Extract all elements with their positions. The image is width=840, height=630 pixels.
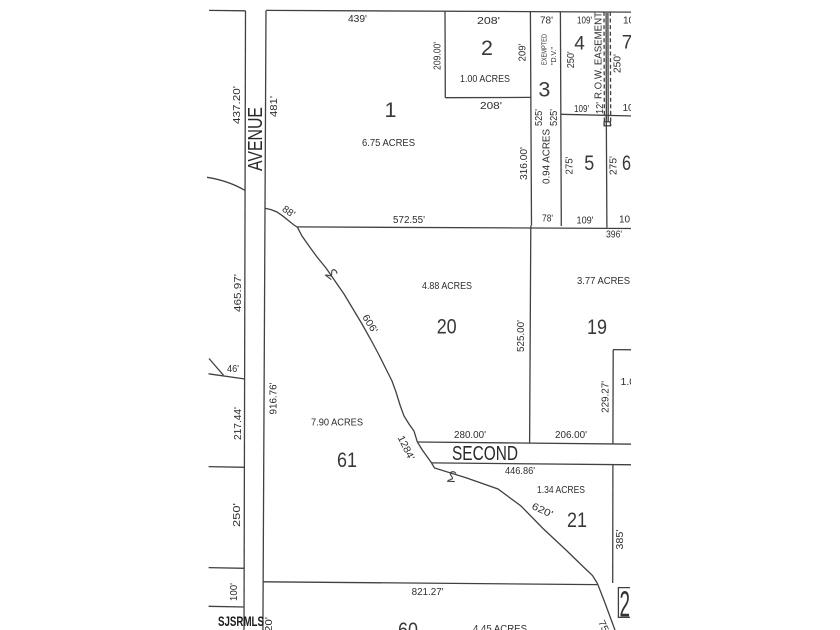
svg-text:275': 275' (609, 156, 620, 175)
svg-text:1.34 ACRES: 1.34 ACRES (537, 484, 585, 496)
svg-text:SJSRMLS: SJSRMLS (218, 613, 264, 629)
svg-text:385': 385' (615, 530, 626, 550)
svg-text:208': 208' (480, 101, 502, 112)
svg-text:AVENUE: AVENUE (245, 107, 267, 171)
svg-text:21: 21 (567, 508, 587, 532)
svg-text:6: 6 (622, 151, 631, 175)
svg-text:109': 109' (577, 216, 594, 227)
svg-text:1: 1 (385, 98, 397, 122)
svg-text:5: 5 (584, 151, 594, 175)
svg-text:208': 208' (477, 16, 500, 27)
svg-text:206.00': 206.00' (555, 430, 587, 441)
svg-text:109': 109' (577, 16, 592, 27)
svg-text:572.55': 572.55' (393, 215, 425, 226)
svg-text:0.94 ACRES: 0.94 ACRES (541, 129, 553, 184)
svg-text:396': 396' (606, 230, 622, 241)
svg-text:2: 2 (620, 584, 631, 625)
svg-text:SECOND: SECOND (452, 443, 518, 465)
svg-text:61: 61 (337, 448, 357, 472)
svg-text:437.20': 437.20' (232, 86, 243, 124)
svg-text:280.00': 280.00' (454, 430, 486, 441)
svg-text:6.75 ACRES: 6.75 ACRES (362, 137, 415, 149)
svg-text:"D.V.": "D.V." (549, 47, 558, 65)
svg-text:109': 109' (574, 104, 589, 115)
svg-text:229.27': 229.27' (601, 381, 612, 413)
svg-text:821.27': 821.27' (412, 587, 444, 598)
svg-text:209': 209' (518, 43, 529, 61)
svg-text:465.97': 465.97' (233, 274, 244, 312)
svg-text:2: 2 (481, 36, 493, 60)
svg-text:3.77 ACRES: 3.77 ACRES (577, 275, 630, 287)
svg-text:316.00': 316.00' (519, 147, 530, 180)
svg-text:75': 75' (595, 619, 611, 630)
svg-text:4.45 ACRES: 4.45 ACRES (473, 623, 527, 630)
svg-text:1284': 1284' (395, 434, 416, 462)
svg-text:100': 100' (229, 583, 240, 601)
svg-text:7.90 ACRES: 7.90 ACRES (311, 417, 363, 429)
svg-text:10: 10 (619, 215, 631, 226)
svg-text:R.O.W. EASEMENT: R.O.W. EASEMENT (594, 12, 605, 99)
svg-text:525.00': 525.00' (516, 320, 527, 352)
svg-text:275': 275' (565, 156, 576, 174)
svg-text:46': 46' (227, 364, 239, 375)
svg-text:7: 7 (622, 33, 633, 54)
svg-text:78': 78' (540, 16, 553, 27)
svg-text:250': 250' (613, 54, 624, 73)
svg-text:217.44': 217.44' (233, 407, 244, 440)
svg-text:EXEMPTED: EXEMPTED (540, 34, 549, 65)
svg-text:481': 481' (269, 96, 280, 117)
svg-text:20': 20' (264, 617, 275, 630)
svg-text:12': 12' (595, 102, 606, 114)
svg-text:60: 60 (398, 618, 418, 630)
svg-text:20: 20 (437, 315, 457, 339)
svg-text:78': 78' (542, 214, 553, 225)
svg-text:439': 439' (348, 14, 367, 25)
svg-text:1.00 ACRES: 1.00 ACRES (460, 73, 510, 85)
svg-text:4.88 ACRES: 4.88 ACRES (422, 280, 472, 292)
svg-text:3: 3 (538, 78, 550, 102)
svg-text:525': 525' (549, 109, 560, 126)
svg-text:250': 250' (232, 503, 243, 527)
svg-text:446.86': 446.86' (505, 466, 535, 477)
svg-text:88': 88' (280, 204, 297, 221)
svg-text:916.76': 916.76' (269, 382, 280, 414)
svg-text:620': 620' (530, 501, 555, 520)
svg-text:525': 525' (534, 109, 545, 126)
svg-text:250': 250' (566, 51, 577, 68)
svg-text:209.00': 209.00' (433, 42, 444, 70)
svg-text:19: 19 (587, 315, 607, 339)
